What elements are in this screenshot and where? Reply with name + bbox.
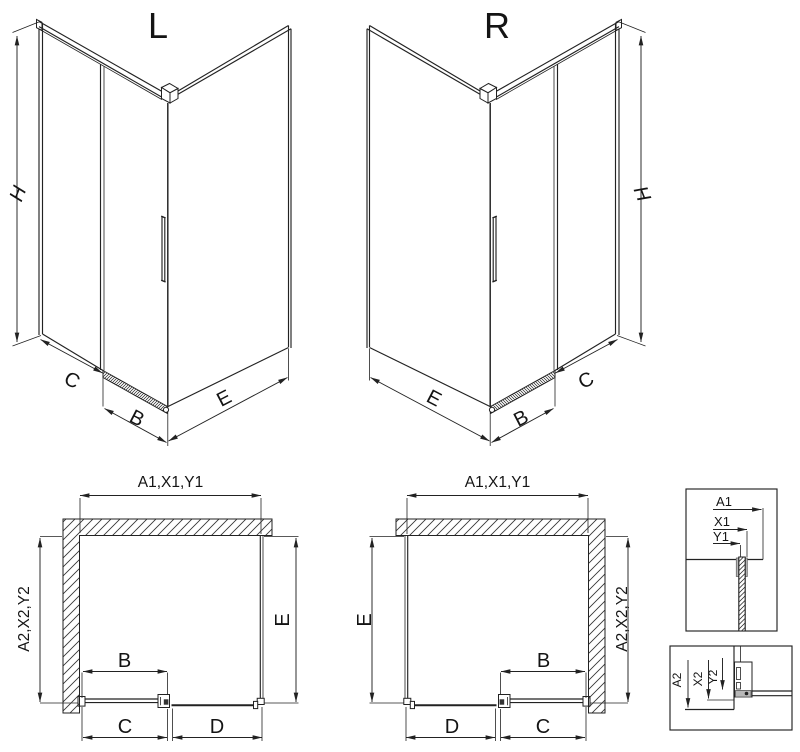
- detail-y2-label: Y2: [706, 669, 720, 684]
- iso-enclosure-geometry: [13, 20, 292, 447]
- detail-top-view: A1 X1 Y1: [686, 489, 777, 631]
- top-dim-label: A1,X1,Y1: [138, 474, 204, 491]
- side-dim-label: E: [272, 613, 294, 626]
- top-dim-label: A1,X1,Y1: [465, 474, 531, 491]
- door-dim-label: B: [510, 406, 532, 432]
- corner-connector: [162, 84, 179, 104]
- fixed-dim-label: C: [536, 716, 550, 738]
- detail-a1-label: A1: [716, 494, 732, 509]
- shower-enclosure-technical-drawing: L H C B E R H E B C: [0, 0, 800, 752]
- door-dim-label: B: [118, 650, 131, 672]
- fixed-dim-label: C: [118, 716, 132, 738]
- drawing-svg: L H C B E R H E B C: [0, 0, 800, 752]
- detail-y1-label: Y1: [713, 529, 729, 544]
- side-dim-label: E: [354, 613, 376, 626]
- iso-left-view: L H C B E: [6, 5, 236, 432]
- plan-side-panel: [257, 536, 264, 705]
- fixed-dim-label: C: [575, 368, 598, 394]
- detail-bottom-view: A2 X2 Y2: [670, 646, 792, 730]
- wall-profile-strip: [739, 557, 745, 631]
- fixed-wall-panel: [37, 20, 104, 371]
- door-handle-icon: [161, 216, 165, 282]
- door-dim-label: B: [537, 650, 550, 672]
- plan-door-assembly: [78, 695, 258, 709]
- height-dim-label: H: [629, 183, 655, 205]
- iso-right-view: R H E B C: [423, 5, 655, 432]
- side-panel: [168, 26, 291, 407]
- opening-dim-label: D: [210, 716, 224, 738]
- variant-title-left: L: [148, 5, 168, 46]
- variant-title-right: R: [484, 5, 510, 46]
- opening-dim-label: D: [445, 716, 459, 738]
- detail-x1-label: X1: [714, 514, 730, 529]
- fixed-dim-label: C: [60, 368, 83, 394]
- wall-dim-label: A2,X2,Y2: [614, 586, 631, 652]
- plan-dim-b: [82, 672, 168, 699]
- door-dim-label: B: [126, 406, 148, 432]
- iso-right-geometry: [367, 20, 646, 447]
- detail-a2-label: A2: [670, 672, 684, 687]
- height-dim-label: H: [6, 183, 32, 205]
- plan-left-view: A1,X1,Y1 A2,X2,Y2 E B C D: [16, 474, 294, 738]
- panel-divider: [101, 65, 105, 371]
- wall-dim-label: A2,X2,Y2: [16, 586, 33, 652]
- roller-screw-icon: [745, 692, 749, 696]
- detail-x2-label: X2: [691, 671, 705, 686]
